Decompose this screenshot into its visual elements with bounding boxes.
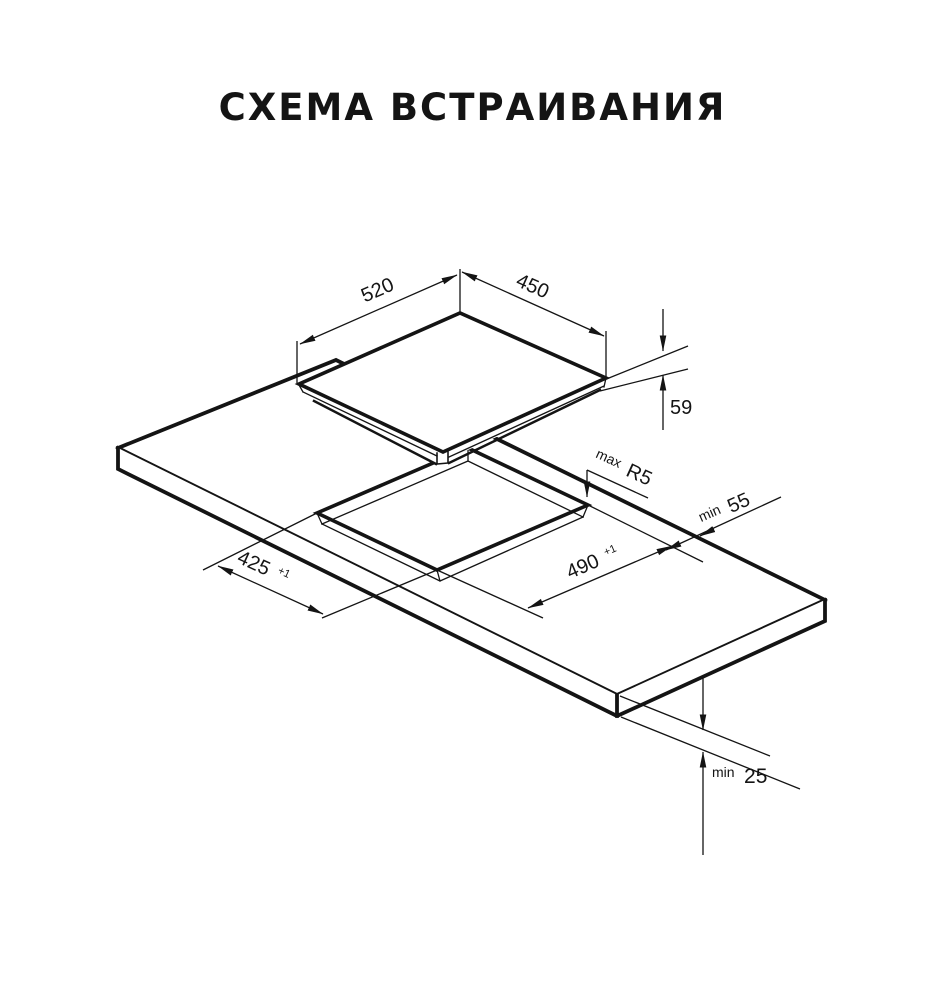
corner-radius-label: max R5 <box>591 445 655 490</box>
hob-width-label: 520 <box>358 274 397 307</box>
installation-diagram: 520 450 59 max R5 min 55 490 +1 425 +1 m… <box>0 0 945 1000</box>
worktop-thickness-label: min 25 <box>712 764 767 788</box>
page-title: СХЕМА ВСТРАИВАНИЯ <box>0 86 945 129</box>
installation-diagram-page: СХЕМА ВСТРАИВАНИЯ <box>0 0 945 1000</box>
rear-clearance-label: min 55 <box>696 489 754 531</box>
hob-height-label: 59 <box>670 397 692 419</box>
hob-depth-label: 450 <box>513 270 552 304</box>
